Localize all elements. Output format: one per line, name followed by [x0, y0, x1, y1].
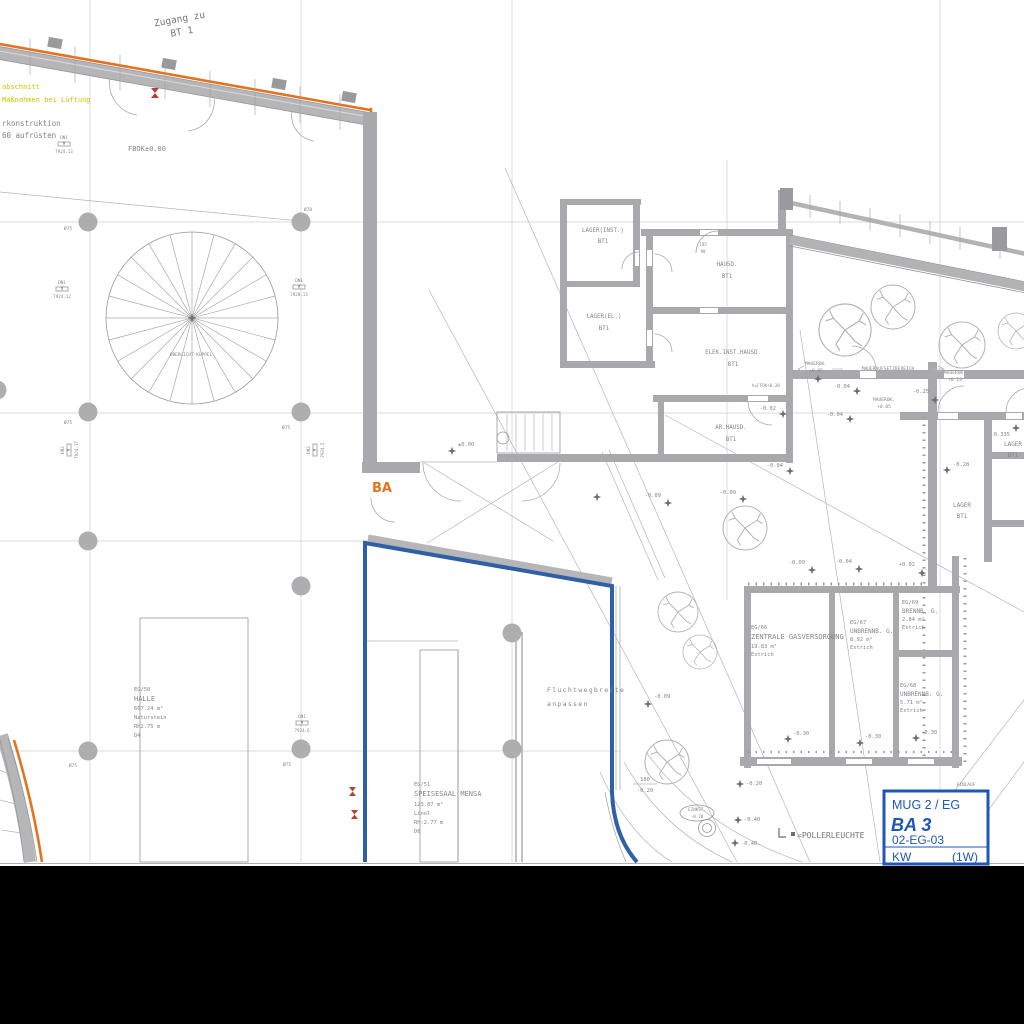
h-ffok-note: h=FFOK+0.20 — [752, 383, 780, 388]
svg-text:7924.5: 7924.5 — [320, 442, 325, 458]
svg-text:7924.13: 7924.13 — [55, 149, 73, 154]
mauerok-3-line2: +0.05 — [877, 404, 891, 410]
room-eg66-line3: 19.83 m² — [751, 643, 777, 650]
title-project: MUG 2 / EG — [892, 798, 960, 812]
room-eg68-line3: 5.71 m² — [900, 699, 923, 706]
svg-text:-0.30: -0.30 — [865, 734, 881, 740]
room-lager-el-line2: BT1 — [599, 326, 610, 332]
svg-text:DN1: DN1 — [295, 278, 303, 283]
black-letterbox — [0, 866, 1024, 1024]
door-dim-height: 90 — [700, 249, 706, 254]
fire-note-line2: Maßnahmen bei Lüftung — [2, 96, 91, 104]
svg-text:+0.02: +0.02 — [899, 562, 915, 568]
room-eg69-line3: 2.84 m² — [902, 616, 925, 623]
room-lager-r2-line1: LAGER — [953, 502, 971, 509]
svg-text:-0.335: -0.335 — [991, 432, 1010, 438]
svg-text:-0.09: -0.09 — [645, 493, 661, 499]
column-label: Ø70 — [304, 206, 313, 213]
construction-note-line2: 60 aufrüsten — [2, 131, 56, 140]
door-dim-width: 195 — [699, 242, 707, 247]
mauerok-2-line1: MAUEROK. — [944, 370, 966, 376]
room-lager-r1-line1: LAGER — [1004, 441, 1022, 448]
screenshot-stage: OBERLICHT-KUPPEL — [0, 0, 1024, 1024]
room-elek-line2: BT1 — [728, 362, 739, 368]
svg-text:-0.09: -0.09 — [789, 560, 805, 566]
room-eg68-line2: UNBRENNB. G. — [900, 691, 943, 698]
svg-text:±0.00: ±0.00 — [458, 442, 474, 448]
room-eg50-line6: D4 — [134, 733, 141, 739]
fire-note-line1: abschnitt — [2, 83, 40, 91]
title-block: MUG 2 / EG BA 3 02-EG-03 KW (1W) — [884, 791, 988, 864]
svg-text:7924.17: 7924.17 — [74, 441, 79, 459]
room-eg50-line2: HALLE — [134, 695, 155, 703]
svg-text:-0.04: -0.04 — [767, 463, 783, 469]
column-label: Ø75 — [64, 225, 73, 232]
room-eg69-line2: BRENNB. G. — [902, 608, 938, 615]
room-eg67-line3: 8.92 m² — [850, 636, 873, 643]
poller-dot — [791, 832, 795, 836]
svg-text:7924.6: 7924.6 — [294, 728, 310, 733]
svg-text:7928.13: 7928.13 — [290, 292, 308, 297]
room-eg67-line1: EG/67 — [850, 620, 866, 626]
svg-text:-0.40: -0.40 — [744, 817, 760, 823]
room-lager-r1-line2: BT1 — [1008, 452, 1019, 459]
svg-text:-0.28: -0.28 — [953, 462, 969, 468]
svg-text:DN2: DN2 — [306, 446, 311, 454]
svg-text:-0.04: -0.04 — [834, 384, 850, 390]
svg-text:7924.12: 7924.12 — [53, 294, 71, 299]
room-elek-line1: ELEK.INST.HAUSD. — [705, 350, 761, 356]
room-eg66-line4: Estrich — [751, 652, 774, 658]
room-ar-hausd-line2: BT1 — [726, 437, 737, 443]
einlauf-label: EINLAUF — [957, 782, 976, 788]
mauerok-2-line2: +0.13 — [948, 377, 962, 383]
hall-east-wall — [363, 112, 377, 462]
room-eg68-line1: EG/68 — [900, 683, 916, 689]
title-sheet-number: 02-EG-03 — [892, 833, 944, 847]
room-eg51-line3: 123.87 m² — [414, 801, 443, 808]
svg-text:DN2: DN2 — [60, 446, 65, 454]
escape-route-note-line2: anpassen — [547, 700, 589, 708]
room-eg51-line1: EG/51 — [414, 782, 430, 788]
room-eg51-line6: D6 — [414, 829, 421, 835]
fbok-level-label: FBOK±0.00 — [128, 145, 166, 153]
escape-route-note-line1: Fluchtwegbreite — [547, 686, 625, 694]
room-ar-hausd-line1: AR.HAUSD. — [715, 425, 746, 431]
skylight-dome: OBERLICHT-KUPPEL — [106, 232, 278, 404]
svg-text:-0.40: -0.40 — [741, 841, 757, 847]
title-phase: BA 3 — [891, 815, 931, 835]
svg-text:DN1: DN1 — [58, 280, 66, 285]
room-lager-inst-line1: LAGER(INST.) — [582, 228, 624, 234]
room-lager-r2-line2: BT1 — [957, 513, 968, 520]
room-eg50-line5: RH2.75 m — [134, 724, 160, 730]
mauerok-1-line1: MAUEROK. — [805, 361, 827, 367]
elevation-marker: -0.20 — [736, 780, 762, 788]
room-hausd-line1: HAUSD. — [717, 262, 738, 268]
room-lager-inst-line2: BT1 — [598, 239, 609, 245]
room-eg66-line2: ZENTRALE GASVERSORGUNG — [751, 633, 844, 641]
skylight-label: OBERLICHT-KUPPEL — [170, 352, 213, 358]
title-row-right: (1W) — [952, 850, 978, 864]
room-eg50-line3: 667.24 m² — [134, 705, 163, 712]
room-eg50-line4: Naturstein — [134, 715, 166, 721]
svg-text:-0.25: -0.25 — [913, 389, 929, 395]
room-lager-el-line1: LAGER(EL.) — [587, 314, 622, 320]
room-eg51-line2: SPEISESAAL MENSA — [414, 790, 482, 798]
room-eg66-line1: EG/66 — [751, 625, 767, 631]
dim-020: -0.20 — [637, 788, 653, 794]
floor-plan-canvas: OBERLICHT-KUPPEL — [0, 0, 1024, 1024]
svg-text:-0.09: -0.09 — [720, 490, 736, 496]
mauerok-3-line1: MAUEROK. — [873, 397, 895, 403]
column-label: Ø75 — [69, 762, 78, 769]
elevation-marker: -0.40 — [734, 816, 760, 824]
title-row-left: KW — [892, 850, 912, 864]
construction-note-line1: rkonstruktion — [2, 119, 61, 128]
svg-text:-0.04: -0.04 — [827, 412, 843, 418]
room-eg69-line4: Estrich — [902, 625, 925, 631]
svg-text:DN1: DN1 — [298, 714, 306, 719]
svg-text:-0.04: -0.04 — [836, 559, 852, 565]
elevation-marker: -0.40 — [731, 839, 757, 847]
einkst-label-line2: -0.70 — [691, 814, 704, 819]
room-hausd-line2: BT1 — [722, 274, 733, 280]
room-eg69-line1: EG/69 — [902, 600, 918, 606]
einkst-label-line1: EINKST. — [688, 807, 706, 812]
svg-text:DN1: DN1 — [60, 135, 68, 140]
room-eg68-line4: Estrich — [900, 708, 923, 714]
legend-pollerleuchte: =POLLERLEUCHTE — [797, 831, 865, 840]
svg-text:-0.02: -0.02 — [760, 406, 776, 412]
dim-180: 180 — [640, 777, 650, 783]
mauerok-1-line2: +0.05 — [809, 368, 823, 374]
maueraufsetzbereich-label: MAUERAUFSETZBEREICH — [862, 366, 915, 372]
column-label: Ø75 — [283, 761, 292, 768]
column-label: Ø75 — [64, 419, 73, 426]
room-eg51-line5: RH:2.77 m — [414, 820, 443, 826]
room-eg50-line1: EG/50 — [134, 687, 150, 693]
svg-text:-0.30: -0.30 — [793, 731, 809, 737]
room-eg67-line2: UNBRENNB. G. — [850, 628, 893, 635]
svg-text:-0.09: -0.09 — [654, 694, 670, 700]
svg-text:-0.20: -0.20 — [746, 781, 762, 787]
column-label: Ø75 — [282, 424, 291, 431]
room-eg51-line4: Linol — [414, 811, 430, 817]
svg-text:-0.30: -0.30 — [921, 730, 937, 736]
ba-phase-label: BA — [372, 481, 392, 496]
room-eg67-line4: Estrich — [850, 645, 873, 651]
